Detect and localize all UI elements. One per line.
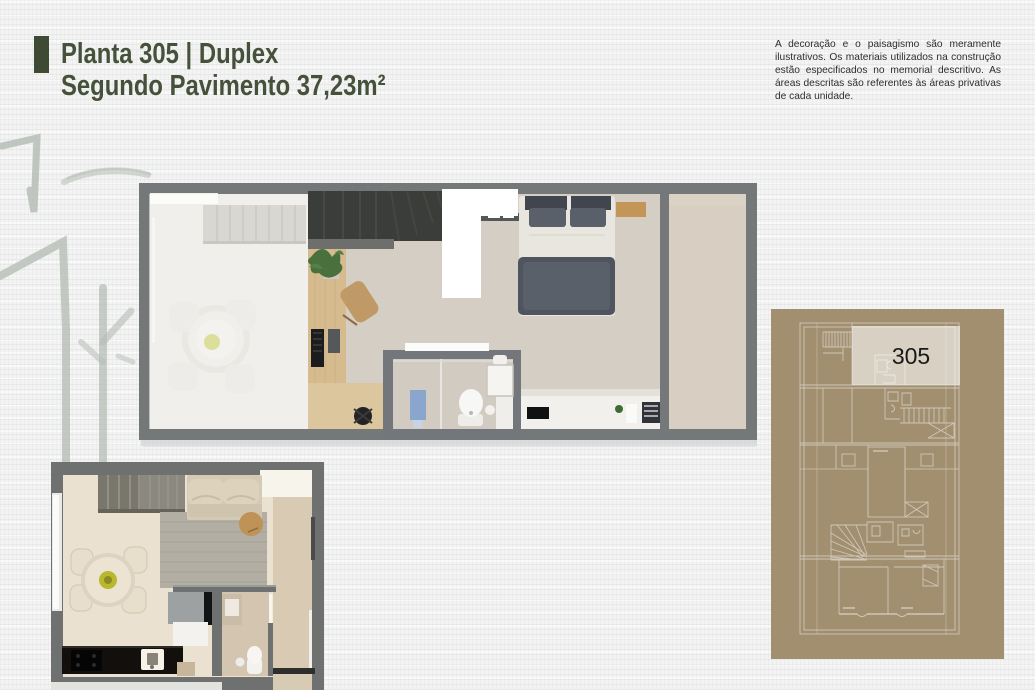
svg-text:305: 305 xyxy=(892,343,930,369)
